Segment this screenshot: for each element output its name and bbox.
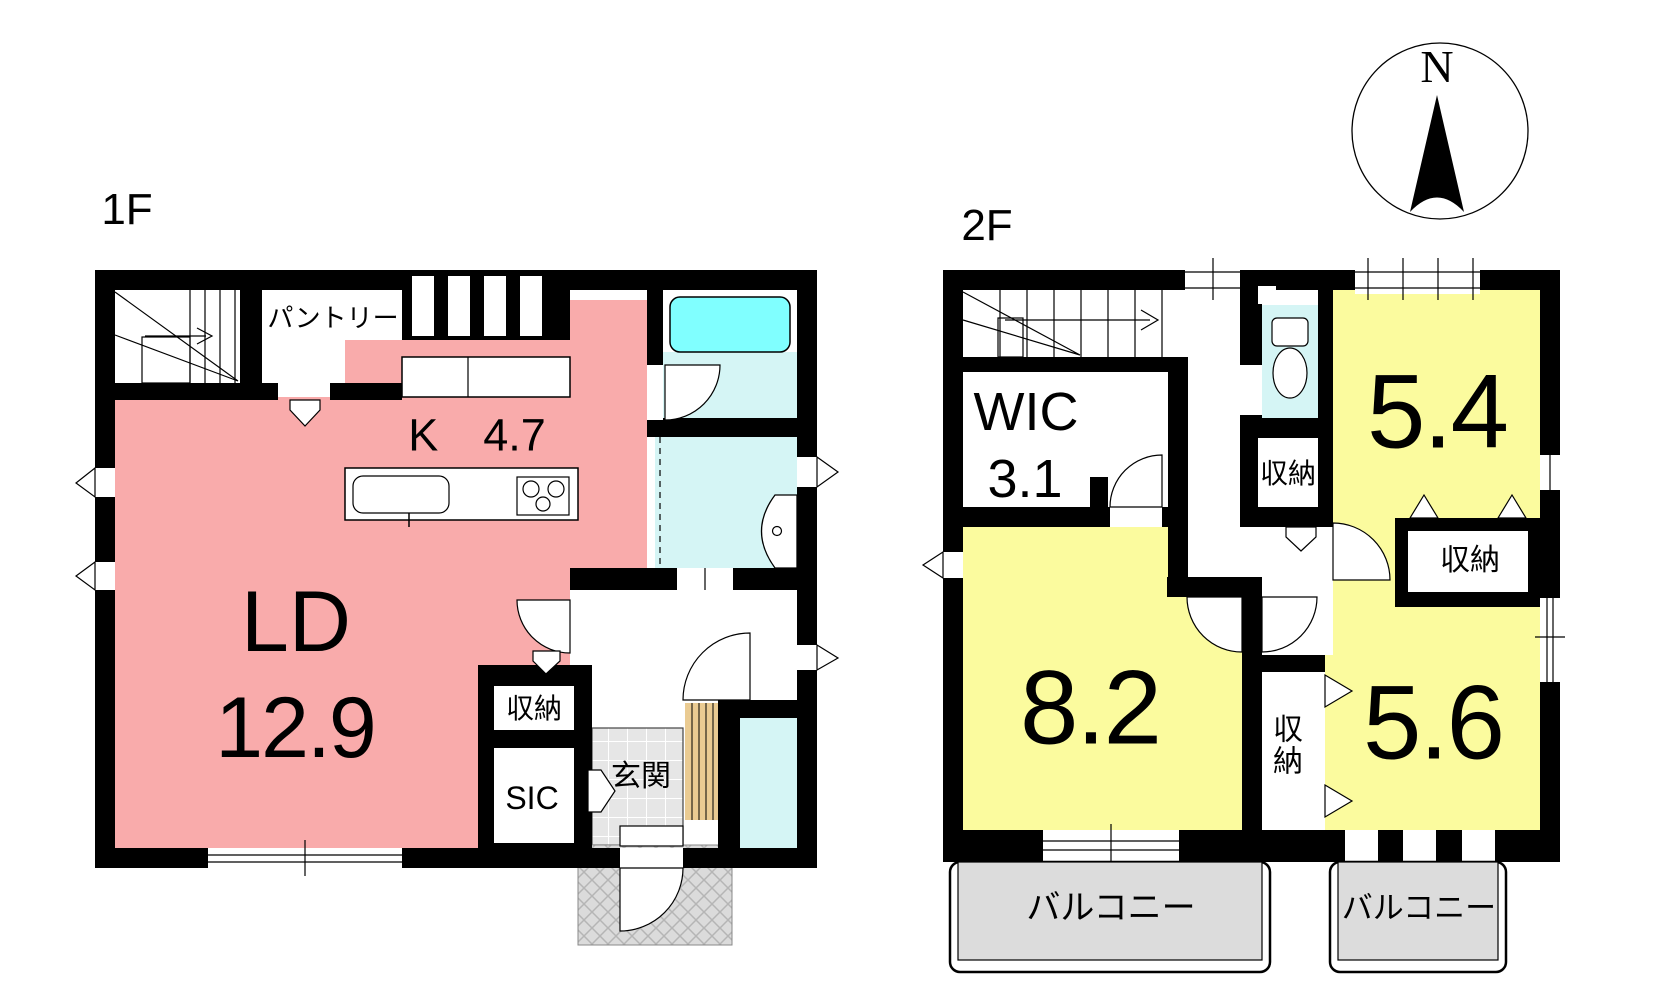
balconies [950,862,1506,972]
toilet-bowl [1273,348,1307,398]
awning-window-icon [817,457,838,487]
awning-window-icon [76,468,95,497]
entrance-door-leaf [620,826,683,846]
kitchen-sink [353,476,449,513]
awning-window-icon [923,552,943,578]
bathtub [670,297,790,352]
awning-window-icon [76,562,95,590]
floor-plan-drawing [0,0,1654,998]
awning-window-icon [817,645,838,670]
floor1-stairs [115,290,238,383]
kitchen-counter [402,357,570,397]
floor2-stairs [963,290,1162,357]
floor-plan-canvas: 1F パントリー K 4.7 LD 12.9 収納 SIC 玄関 2F WIC … [0,0,1654,998]
compass [1352,43,1528,219]
toilet-tank [1272,318,1308,346]
